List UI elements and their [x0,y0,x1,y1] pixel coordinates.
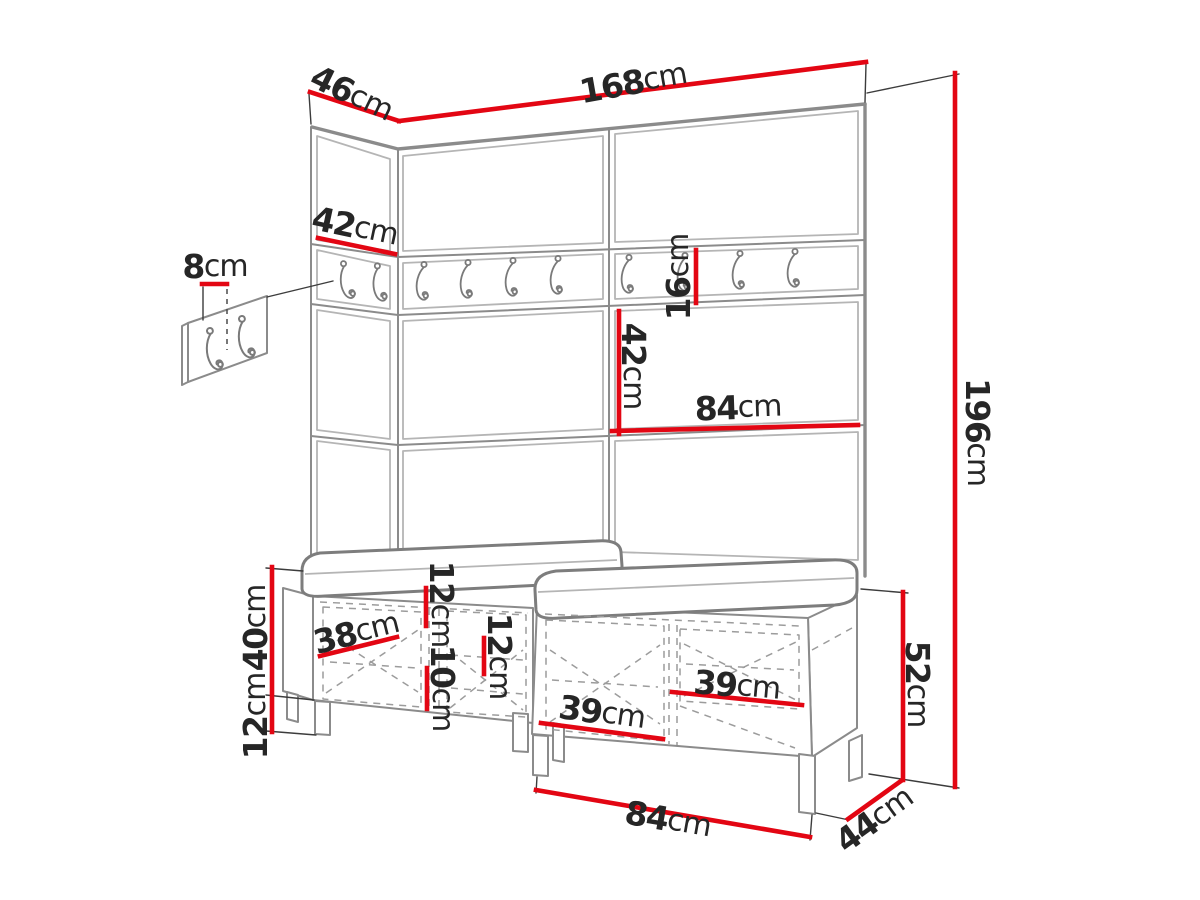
wall-panel-unit [311,104,865,576]
dim-label-total-width: 168cm [576,53,689,110]
dim-label-bench-width: 84cm [622,792,714,845]
dim-label-hook-panel-height: 8cm [182,247,247,286]
wall-row-lines [311,129,865,542]
dim-label-panel-column-width: 84cm [694,386,782,428]
dim-label-bench-bottom-gap: 10cm [424,645,463,732]
coat-hook-icon [336,260,356,299]
coat-hook-icon [622,255,633,293]
coat-hook-icon [370,263,388,302]
coat-hook-icon [788,249,799,287]
coat-hook-icon [417,262,428,300]
dim-label-bench-body-height: 40cm [236,585,275,672]
dim-label-bench-right-gap: 12cm [481,613,520,700]
dim-label-bench-depth: 44cm [827,778,920,860]
coat-hook-icon [506,258,517,296]
dim-label-total-height: 196cm [959,378,998,486]
furniture-dimension-diagram: 168cm 46cm 42cm 8cm 16cm 42cm 84cm 196cm… [0,0,1200,900]
dim-label-total-depth: 46cm [305,56,400,129]
wall-top-edge [312,104,865,149]
right-bench-side [808,595,857,757]
technical-drawing: 168cm 46cm 42cm 8cm 16cm 42cm 84cm 196cm… [0,0,1200,900]
dim-label-bench-top-gap: 12cm [423,561,462,648]
hook-panel-pointer-line [267,281,333,297]
coat-hook-icon [551,256,562,294]
coat-hook-icon [733,251,744,289]
dim-label-bench-leg-height: 12cm [236,673,275,760]
left-bench-side [283,588,313,700]
dim-label-bench-total-height: 52cm [899,641,938,728]
dim-label-hook-rail-height: 16cm [659,234,698,321]
coat-hook-icon [461,260,472,298]
dim-label-panel-row-height: 42cm [615,323,654,410]
